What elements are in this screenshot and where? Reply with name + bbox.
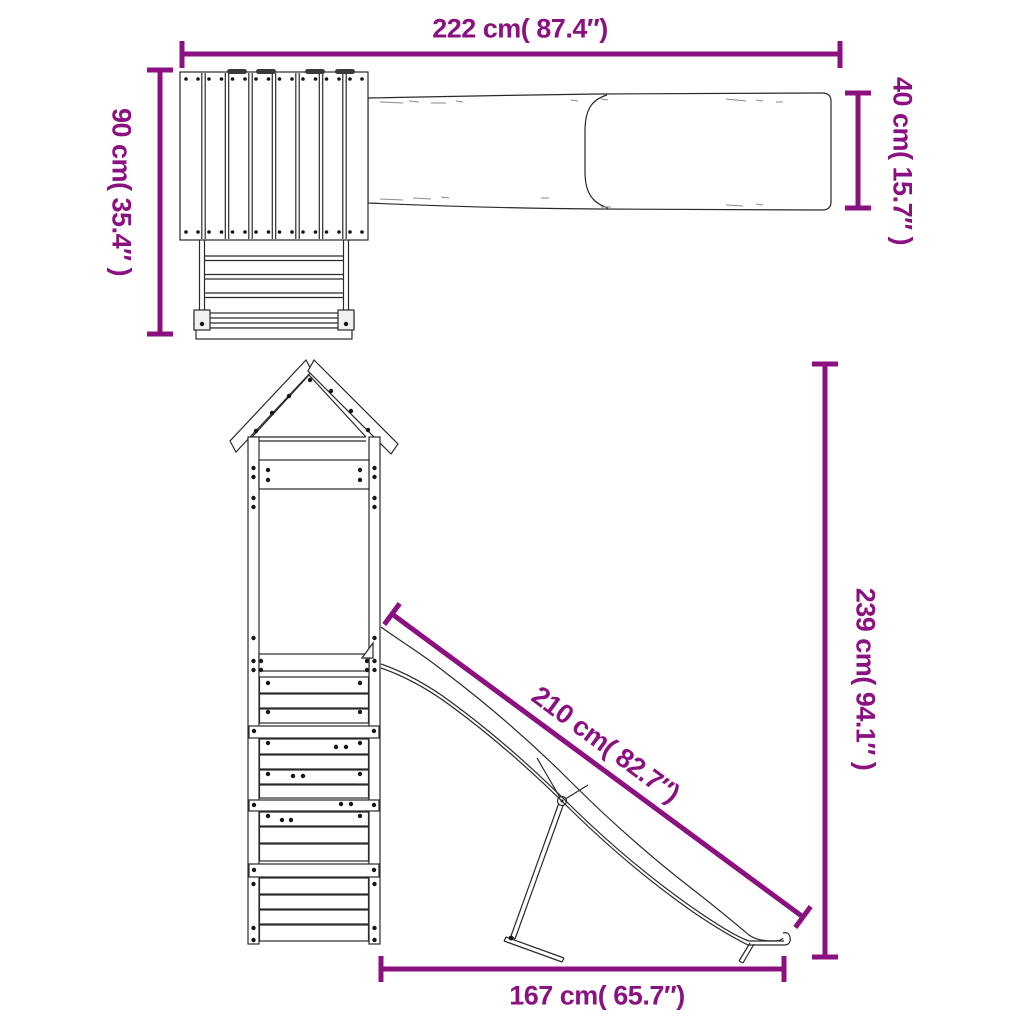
screw-dot: [267, 77, 271, 81]
screw-dot: [301, 774, 305, 778]
top-view-ladder: [194, 240, 354, 339]
wall-plank: [260, 878, 369, 894]
screw-dot: [291, 774, 295, 778]
slide-end-lip: [783, 933, 790, 945]
slide-side-fill: [381, 627, 783, 943]
ladder-foot-right: [338, 310, 354, 330]
dimension-overall-height: 239 cm( 94.1″ ): [812, 364, 881, 957]
screw-dot: [314, 77, 318, 81]
screw-dot: [301, 77, 305, 81]
screw-dot: [365, 668, 369, 672]
leg-foot-plank: [504, 937, 564, 962]
dimension-label-overall-width: 222 cm( 87.4″): [432, 13, 608, 43]
side-view-tower: [248, 378, 380, 944]
dimension-overall-width: 222 cm( 87.4″): [182, 13, 840, 68]
screw-dot: [344, 322, 348, 326]
screw-dot: [372, 882, 376, 886]
screw-dot: [251, 938, 255, 942]
screw-dot: [329, 389, 333, 393]
screw-dot: [254, 77, 258, 81]
screw-dot: [366, 428, 370, 432]
frame-joist: [249, 726, 379, 738]
wall-plank: [260, 812, 369, 826]
slide-plan-outline: [368, 93, 831, 210]
wall-plank: [260, 770, 369, 784]
screw-dot: [372, 668, 376, 672]
screw-dot: [252, 803, 256, 807]
screw-dot: [344, 745, 348, 749]
screw-dot: [372, 938, 376, 942]
side-view-slide: [381, 627, 790, 963]
roof-board-right: [308, 360, 398, 454]
dimension-label-base-length: 167 cm( 65.7″): [509, 980, 685, 1010]
screw-dot: [251, 466, 255, 470]
screw-dot: [196, 77, 200, 81]
ladder-base-bar: [194, 313, 354, 328]
wall-plank: [260, 844, 369, 861]
screw-dot: [266, 681, 270, 685]
screw-dot: [372, 659, 376, 663]
screw-dot: [334, 745, 338, 749]
screw-dot: [266, 772, 270, 776]
screw-dot: [220, 230, 224, 234]
screw-dot: [308, 378, 312, 382]
roof-ridge-tab: [227, 69, 247, 74]
screw-dot: [360, 77, 364, 81]
screw-dot: [251, 926, 255, 930]
dimension-line: [392, 614, 803, 917]
screw-dot: [372, 475, 376, 479]
dimension-label-overall-height: 239 cm( 94.1″ ): [851, 588, 881, 771]
dimension-tick: [384, 604, 399, 625]
screw-dot: [280, 818, 284, 822]
screw-dot: [267, 230, 271, 234]
screw-dot: [184, 77, 188, 81]
screw-dot: [259, 668, 263, 672]
screw-dot: [358, 710, 362, 714]
screw-dot: [251, 636, 255, 640]
roof-ridge-tab: [256, 69, 276, 74]
screw-dot: [231, 77, 235, 81]
slide-bracket-triangle: [362, 643, 373, 658]
screw-dot: [252, 868, 256, 872]
roof-plan-outline: [180, 72, 368, 240]
screw-dot: [339, 802, 343, 806]
wall-plank: [260, 755, 369, 769]
screw-dot: [207, 77, 211, 81]
top-view-roof: [180, 69, 368, 240]
top-view-slide: [368, 93, 831, 210]
screw-dot: [358, 478, 362, 482]
wall-plank: [260, 785, 369, 798]
screw-dot: [509, 936, 514, 941]
screw-dot: [254, 230, 258, 234]
screw-dot: [266, 468, 270, 472]
screw-dot: [251, 659, 255, 663]
screw-dot: [337, 230, 341, 234]
screw-dot: [251, 882, 255, 886]
ladder-base-plank: [196, 328, 352, 339]
screw-dot: [231, 230, 235, 234]
screw-dot: [287, 394, 291, 398]
dimension-diagram: 222 cm( 87.4″) 90 cm( 35.4″ ) 40 cm( 15.…: [0, 0, 1024, 1024]
screw-dot: [358, 772, 362, 776]
dimension-overall-depth: 90 cm( 35.4″ ): [107, 70, 173, 334]
screw-dot: [184, 230, 188, 234]
screw-dot: [358, 681, 362, 685]
screw-dot: [266, 478, 270, 482]
ladder-rungs: [205, 256, 344, 298]
screw-dot: [251, 475, 255, 479]
screw-dot: [290, 77, 294, 81]
roof-ridge-tab: [335, 69, 355, 74]
screw-dot: [266, 741, 270, 745]
screw-dot: [251, 496, 255, 500]
top-rail-board: [259, 460, 369, 489]
screw-dot: [372, 868, 376, 872]
screw-dot: [266, 814, 270, 818]
wall-plank: [260, 739, 369, 754]
wall-plank: [260, 925, 369, 941]
screw-dot: [372, 496, 376, 500]
wall-plank: [260, 910, 369, 924]
screw-dot: [325, 77, 329, 81]
screw-dot: [348, 230, 352, 234]
wall-plank: [260, 827, 369, 843]
screw-dot: [251, 668, 255, 672]
ladder-rails: [200, 240, 349, 313]
screw-dot: [207, 230, 211, 234]
dimension-label-overall-depth: 90 cm( 35.4″ ): [107, 108, 137, 276]
screw-dot: [358, 814, 362, 818]
leg-strut: [511, 800, 564, 939]
roof-board-left: [230, 360, 312, 452]
roof-ridge-tab: [305, 69, 325, 74]
screw-dot: [270, 411, 274, 415]
side-view: [230, 360, 790, 963]
screw-dot: [365, 659, 369, 663]
screw-dot: [289, 818, 293, 822]
screw-dot: [372, 505, 376, 509]
screw-dot: [372, 803, 376, 807]
screw-dot: [349, 409, 353, 413]
wall-plank: [260, 677, 369, 693]
screw-dot: [259, 659, 263, 663]
screw-dot: [252, 729, 256, 733]
screw-dot: [290, 230, 294, 234]
frame-joist: [249, 864, 379, 877]
frame-joist: [249, 800, 379, 811]
wall-plank: [260, 709, 369, 723]
screw-dot: [243, 77, 247, 81]
wall-plank: [260, 694, 369, 708]
screw-dot: [372, 636, 376, 640]
dimension-slide-width: 40 cm( 15.7″ ): [845, 77, 918, 245]
dimension-tick: [795, 907, 810, 928]
screw-dot: [220, 77, 224, 81]
top-view: [180, 69, 831, 339]
screw-dot: [301, 230, 305, 234]
screw-dot: [278, 230, 282, 234]
screw-dot: [200, 322, 204, 326]
screw-dot: [251, 505, 255, 509]
screw-dot: [349, 802, 353, 806]
screw-dot: [266, 710, 270, 714]
diagram-canvas: 222 cm( 87.4″) 90 cm( 35.4″ ) 40 cm( 15.…: [0, 0, 1024, 1024]
screw-dot: [372, 729, 376, 733]
screw-dot: [337, 77, 341, 81]
screw-dot: [358, 468, 362, 472]
screw-dot: [348, 77, 352, 81]
platform-board: [259, 654, 369, 671]
screw-dot: [358, 741, 362, 745]
screw-dot: [314, 230, 318, 234]
screw-dot: [254, 429, 258, 433]
screw-dot: [372, 926, 376, 930]
screw-dot: [360, 230, 364, 234]
screw-dot: [325, 230, 329, 234]
screw-dot: [372, 466, 376, 470]
dimension-base-length: 167 cm( 65.7″): [381, 956, 784, 1010]
slide-runout-foot: [739, 943, 754, 963]
screw-dot: [196, 230, 200, 234]
wall-plank: [260, 895, 369, 909]
dimension-slide-length: 210 cm( 82.7″): [384, 604, 810, 928]
dimension-label-slide-width: 40 cm( 15.7″ ): [888, 77, 918, 245]
ladder-foot-left: [194, 310, 210, 330]
screw-dot: [278, 77, 282, 81]
screw-dot: [243, 230, 247, 234]
